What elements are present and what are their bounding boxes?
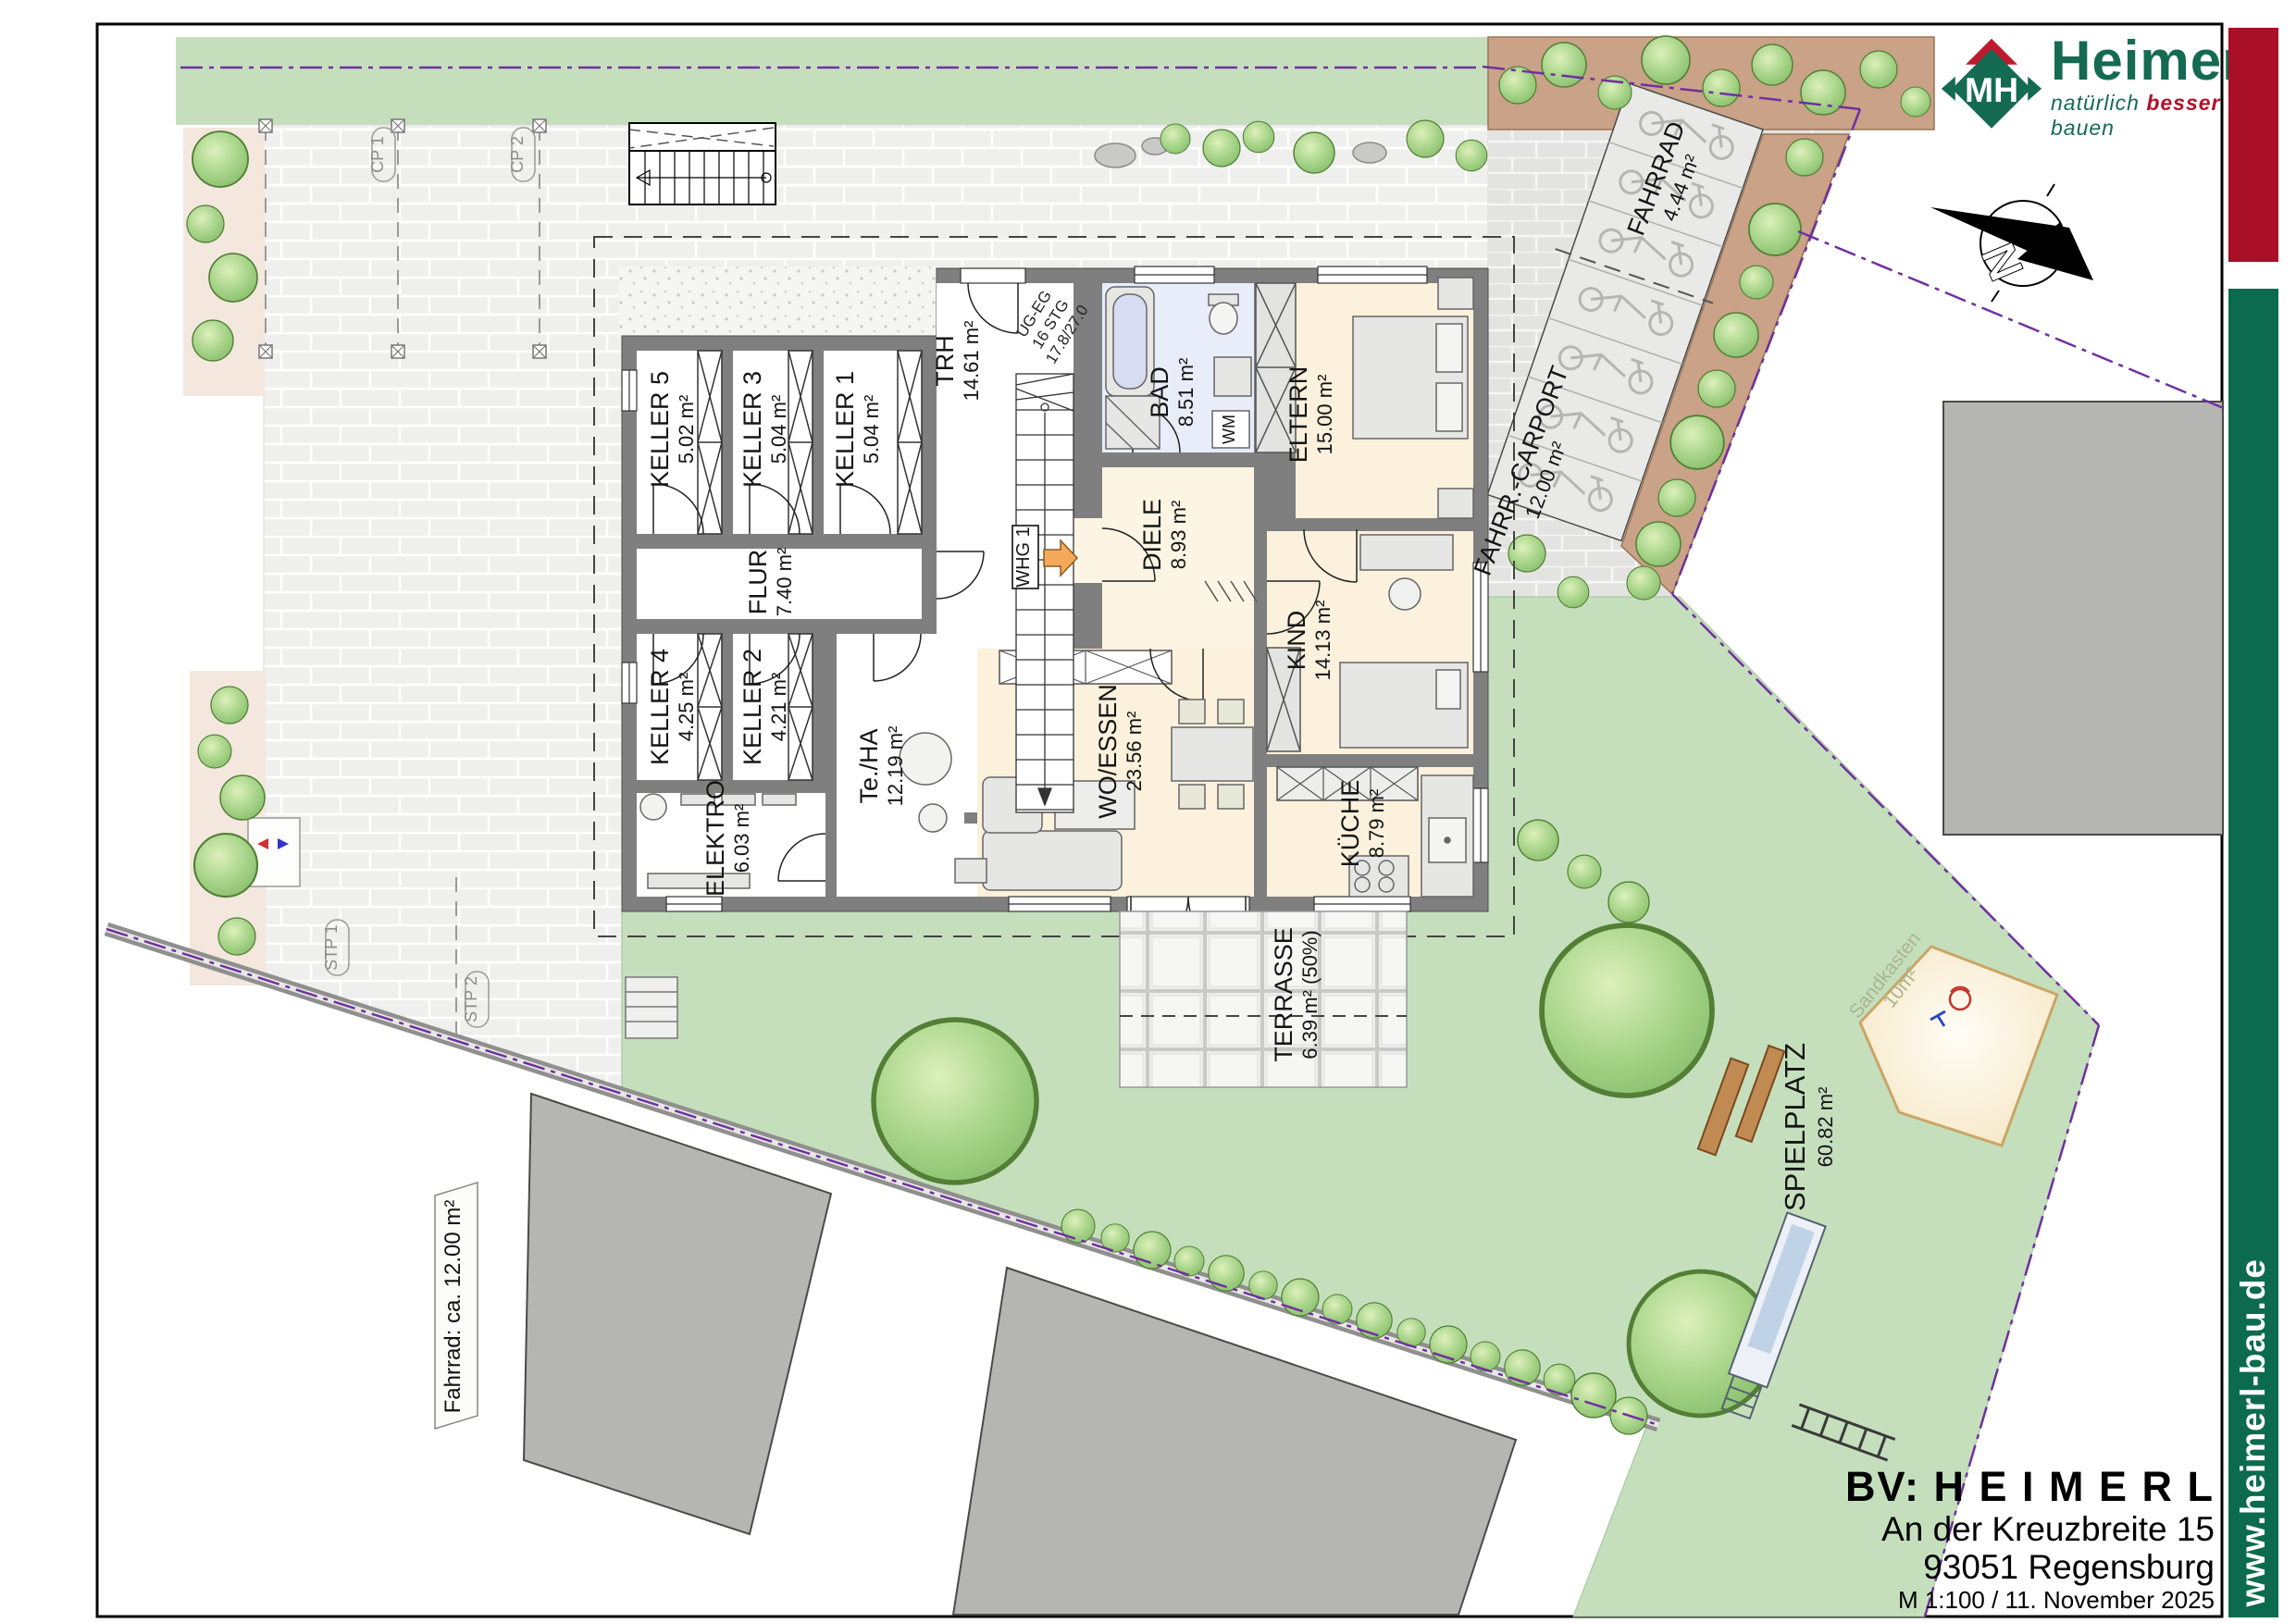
label-bike-note: Fahrrad: ca. 12.00 m² [441,1200,465,1414]
tagline-accent: besser [2146,91,2220,115]
tagline-pre: natürlich [2051,91,2140,115]
gravel-strip [618,266,937,337]
svg-text:8.51 m²: 8.51 m² [1174,358,1198,427]
svg-text:15.00 m²: 15.00 m² [1313,375,1336,455]
svg-text:KELLER 2: KELLER 2 [738,649,766,765]
site-plan-drawing: CP 1 CP 2 STP 1 STP 2 [0,0,2296,1623]
sofa [983,831,1122,890]
whg1-label: WHG 1 [1013,527,1034,588]
svg-text:4.25 m²: 4.25 m² [675,673,698,742]
svg-text:TERRASSE: TERRASSE [1270,927,1297,1062]
title-block: BV: H E I M E R L An der Kreuzbreite 15 … [1845,1464,2215,1614]
svg-text:6.39 m² (50%): 6.39 m² (50%) [1298,930,1322,1059]
svg-text:SPIELPLATZ: SPIELPLATZ [1779,1043,1811,1211]
bathroom-sink [1214,357,1251,396]
svg-text:KÜCHE: KÜCHE [1336,780,1364,868]
garden-steps [626,977,677,1038]
svg-text:KELLER 4: KELLER 4 [646,649,674,765]
label-wm: WM [1220,415,1238,444]
svg-text:5.02 m²: 5.02 m² [675,395,698,465]
dining-table [1172,727,1253,781]
svg-text:5.04 m²: 5.04 m² [767,395,790,465]
door-opening-trh-diele [1074,518,1116,583]
website-link: www.heimerl-bau.de [2234,1258,2273,1606]
svg-text:4.21 m²: 4.21 m² [767,673,790,742]
terrace [1120,911,1407,1087]
svg-text:8.93 m²: 8.93 m² [1167,501,1190,570]
svg-text:5.04 m²: 5.04 m² [860,395,883,465]
svg-text:23.56 m²: 23.56 m² [1123,712,1146,792]
label-terrasse: TERRASSE6.39 m² (50%) [1270,927,1322,1062]
svg-text:Te./HA: Te./HA [855,728,883,803]
label-teha: Te./HA12.19 m² [855,726,907,807]
parking-spot-stp1-label: STP 1 [322,924,341,971]
svg-text:KELLER 3: KELLER 3 [738,371,766,488]
tagline-post: bauen [2051,116,2115,140]
svg-text:DIELE: DIELE [1138,499,1166,571]
label-diele: DIELE8.93 m² [1138,499,1190,571]
label-eltern: ELTERN15.00 m² [1285,366,1336,464]
svg-text:8.79 m²: 8.79 m² [1365,789,1388,859]
project-street: An der Kreuzbreite 15 [1845,1510,2215,1548]
svg-text:ELEKTRO: ELEKTRO [701,780,729,897]
company-logo: MH Heimerl natürlich besser bauen [1940,33,2245,141]
scale-and-date: M 1:100 / 11. November 2025 [1845,1587,2215,1614]
svg-text:14.13 m²: 14.13 m² [1311,601,1334,681]
label-kind: KIND14.13 m² [1283,601,1334,681]
svg-text:14.61 m²: 14.61 m² [960,321,983,402]
svg-text:KELLER 5: KELLER 5 [646,371,674,488]
label-kueche: KÜCHE8.79 m² [1336,780,1388,868]
logo-monogram: MH [1965,70,2018,109]
project-city: 93051 Regensburg [1845,1548,2215,1586]
svg-text:BAD: BAD [1146,366,1173,418]
parking-spot-stp2-label: STP 2 [462,976,480,1022]
carport-spot-cp2-label: CP 2 [508,136,527,173]
label-flur: FLUR7.40 m² [744,548,796,617]
staircase [1016,374,1074,812]
desk-kind [1360,535,1453,570]
svg-text:FLUR: FLUR [744,550,772,615]
svg-text:KIND: KIND [1283,611,1310,671]
project-title: BV: H E I M E R L [1845,1464,2215,1510]
svg-text:60.82 m²: 60.82 m² [1814,1087,1837,1168]
brand-bar-red [2228,28,2278,262]
svg-text:6.03 m²: 6.03 m² [730,804,753,873]
svg-text:WO/ESSEN: WO/ESSEN [1094,684,1122,819]
label-bad: BAD8.51 m² [1146,358,1198,427]
carport-spot-cp1-label: CP 1 [368,136,387,173]
svg-text:ELTERN: ELTERN [1285,366,1312,464]
svg-text:12.19 m²: 12.19 m² [884,726,907,807]
svg-text:KELLER 1: KELLER 1 [831,371,859,488]
svg-text:7.40 m²: 7.40 m² [773,548,796,617]
toilet [1210,303,1237,334]
svg-text:TRH: TRH [931,335,959,387]
logo-mh-icon: MH [1940,38,2043,136]
boiler [900,733,951,785]
site-plan-page: CP 1 CP 2 STP 1 STP 2 [0,0,2296,1623]
brand-bar-green: www.heimerl-bau.de [2228,289,2278,1617]
exterior-stair [629,123,776,204]
